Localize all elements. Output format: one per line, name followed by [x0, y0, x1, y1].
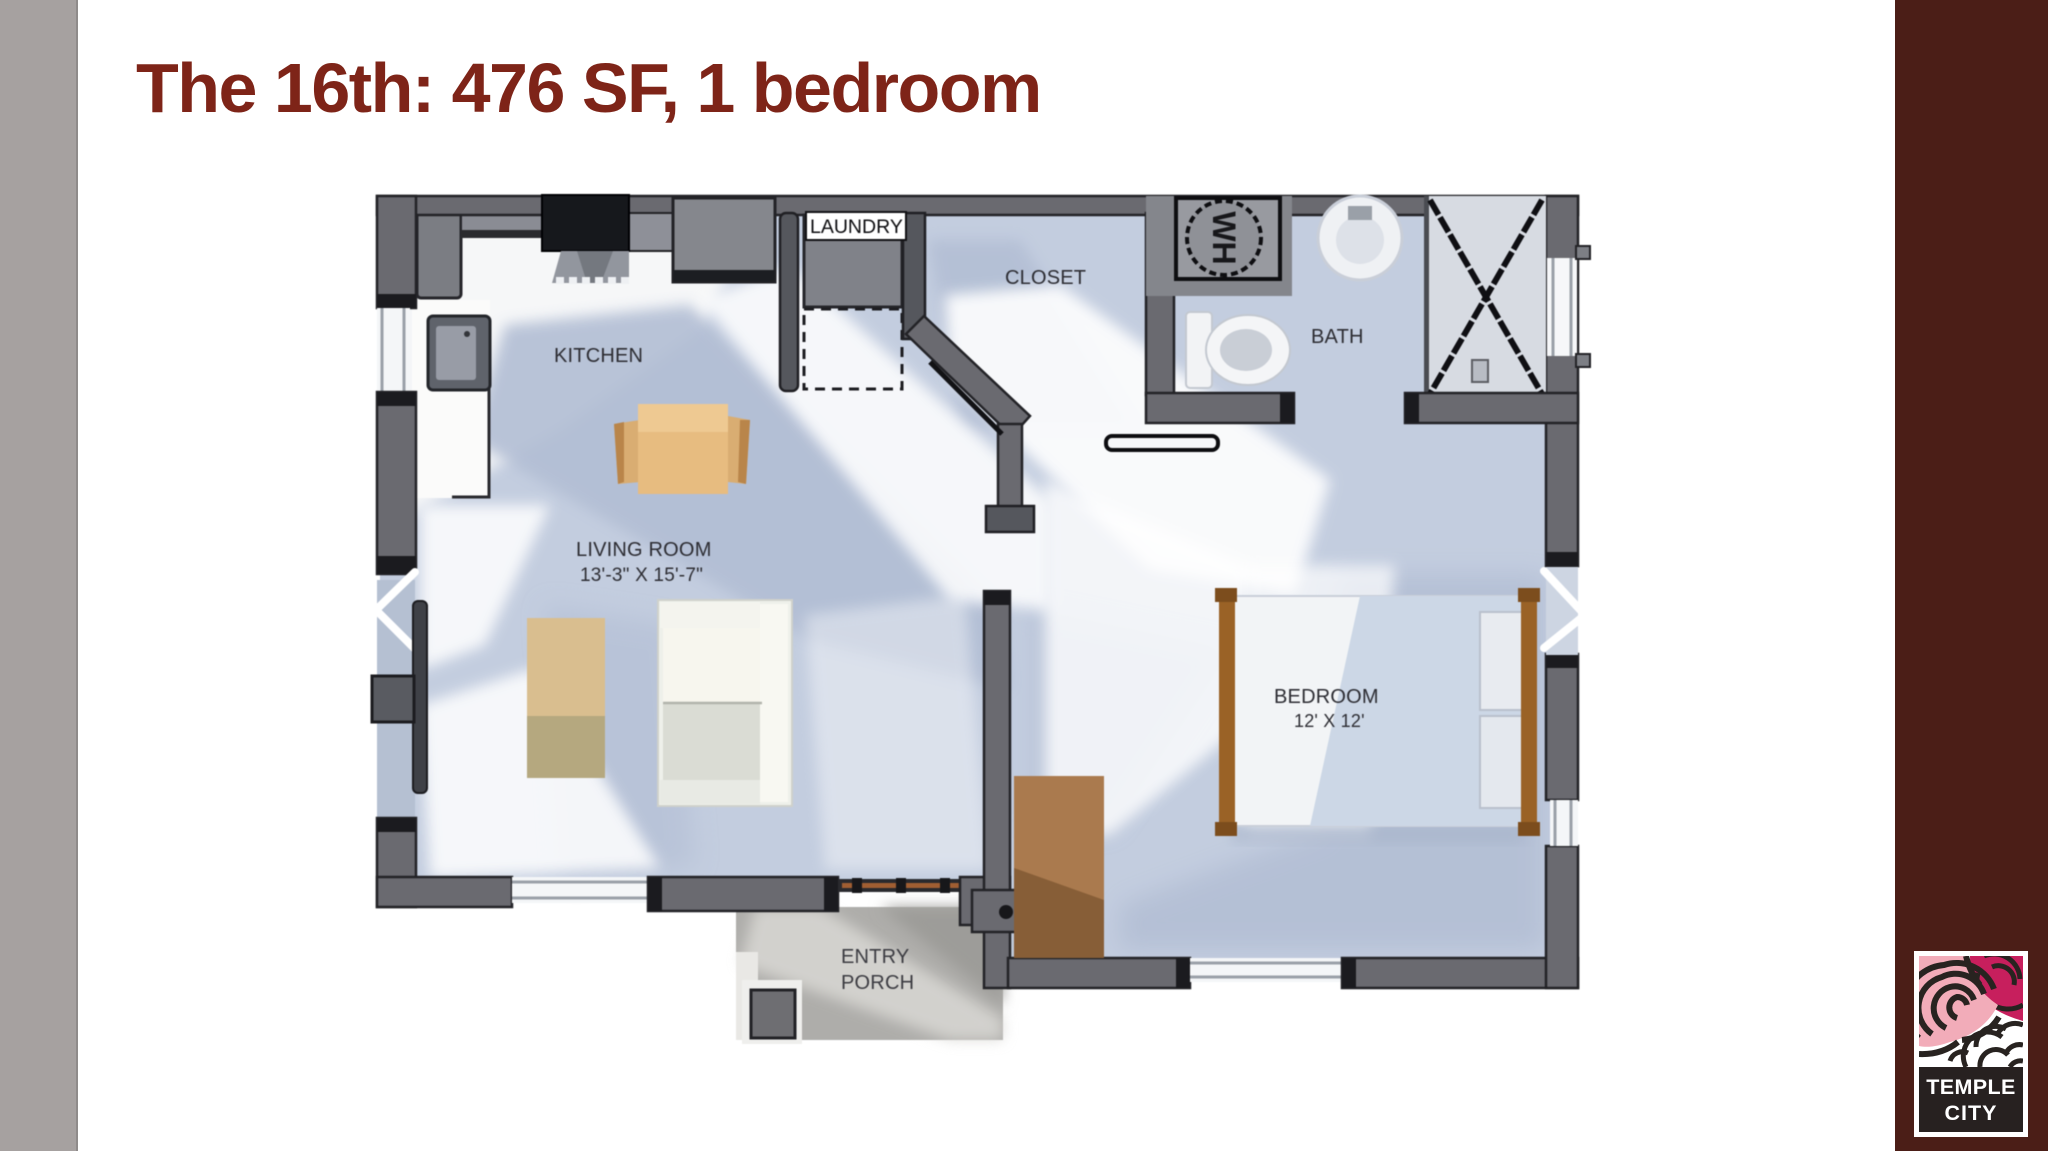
svg-text:CITY: CITY [1945, 1101, 1998, 1125]
svg-text:TEMPLE: TEMPLE [1926, 1075, 2016, 1099]
svg-text:PORCH: PORCH [841, 972, 914, 994]
svg-text:13'-3" X 15'-7": 13'-3" X 15'-7" [580, 565, 703, 586]
svg-text:BEDROOM: BEDROOM [1274, 686, 1379, 708]
svg-text:ENTRY: ENTRY [841, 946, 909, 968]
svg-text:LAUNDRY: LAUNDRY [810, 216, 903, 238]
svg-text:LIVING ROOM: LIVING ROOM [576, 539, 712, 561]
svg-text:BATH: BATH [1311, 326, 1364, 348]
svg-text:KITCHEN: KITCHEN [554, 345, 643, 367]
svg-text:12' X 12': 12' X 12' [1294, 711, 1365, 731]
svg-text:WH: WH [1206, 211, 1242, 264]
svg-text:CLOSET: CLOSET [1005, 267, 1086, 289]
